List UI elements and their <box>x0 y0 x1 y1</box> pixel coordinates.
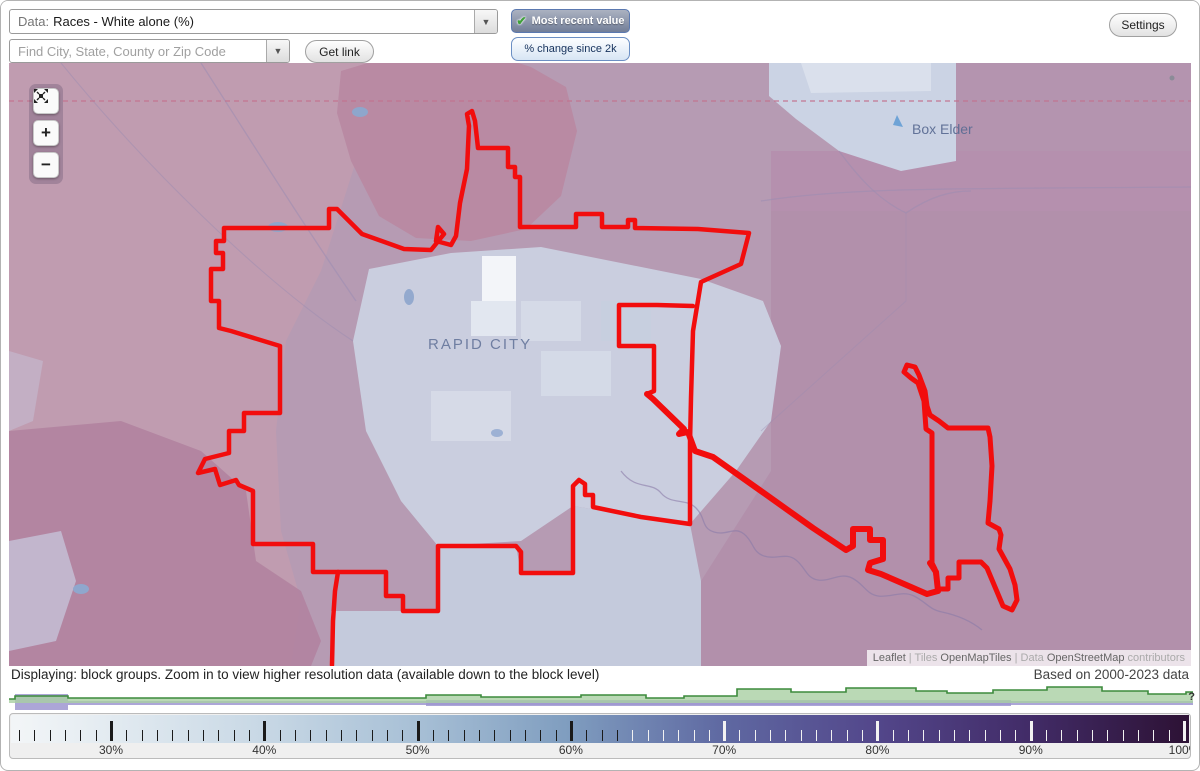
legend-minor-tick <box>464 730 465 741</box>
search-arrow-icon[interactable]: ▼ <box>266 40 289 62</box>
histogram-chart <box>9 685 1193 712</box>
search-placeholder: Find City, State, County or Zip Code <box>10 44 266 59</box>
fullscreen-icon <box>34 89 48 103</box>
legend-minor-tick <box>617 730 618 741</box>
legend-minor-tick <box>556 730 557 741</box>
legend-minor-tick <box>694 730 695 741</box>
legend-minor-tick <box>648 730 649 741</box>
legend-minor-tick <box>494 730 495 741</box>
legend-minor-tick <box>50 730 51 741</box>
legend-minor-tick <box>540 730 541 741</box>
legend-minor-tick <box>126 730 127 741</box>
legend-minor-tick <box>985 730 986 741</box>
data-select[interactable]: Data:Races - White alone (%) ▼ <box>9 9 498 34</box>
legend-minor-tick <box>249 730 250 741</box>
legend-minor-tick <box>1107 730 1108 741</box>
legend-minor-tick <box>96 730 97 741</box>
legend-label: 100% <box>1169 743 1191 757</box>
legend-minor-tick <box>954 730 955 741</box>
search-input[interactable]: Find City, State, County or Zip Code ▼ <box>9 39 290 63</box>
attribution-part: Data <box>1021 652 1047 664</box>
legend-minor-tick <box>1169 730 1170 741</box>
legend-minor-tick <box>280 730 281 741</box>
legend-label: 60% <box>559 743 583 757</box>
data-select-value: Data:Races - White alone (%) <box>10 14 474 29</box>
status-data-range-text: Based on 2000-2023 data <box>1034 667 1189 682</box>
get-link-button[interactable]: Get link <box>305 40 374 63</box>
zoom-out-button[interactable]: − <box>33 152 59 178</box>
legend-minor-tick <box>602 730 603 741</box>
legend-major-tick <box>110 721 113 741</box>
legend-minor-tick <box>310 730 311 741</box>
legend-minor-tick <box>893 730 894 741</box>
legend-minor-tick <box>234 730 235 741</box>
legend-minor-tick <box>1153 730 1154 741</box>
legend-minor-tick <box>1000 730 1001 741</box>
attribution-part: | <box>906 652 915 664</box>
legend-major-tick <box>417 721 420 741</box>
legend-minor-tick <box>663 730 664 741</box>
legend-minor-tick <box>218 730 219 741</box>
legend-major-tick <box>1030 721 1033 741</box>
legend-minor-tick <box>341 730 342 741</box>
legend-major-tick <box>263 721 266 741</box>
legend-minor-tick <box>709 730 710 741</box>
legend-minor-tick <box>372 730 373 741</box>
legend-minor-tick <box>908 730 909 741</box>
legend-minor-tick <box>326 730 327 741</box>
map-tiles <box>9 63 1191 666</box>
color-scale-labels: 30%40%50%60%70%80%90%100% <box>11 743 1189 759</box>
legend-minor-tick <box>1123 730 1124 741</box>
color-scale-legend: 30%40%50%60%70%80%90%100% <box>9 713 1191 759</box>
legend-label: 70% <box>712 743 736 757</box>
color-scale-gradient-bar <box>11 715 1189 743</box>
legend-minor-tick <box>295 730 296 741</box>
legend-minor-tick <box>862 730 863 741</box>
legend-minor-tick <box>1061 730 1062 741</box>
attribution-part: Leaflet <box>873 652 906 664</box>
legend-major-tick <box>876 721 879 741</box>
data-select-arrow-icon[interactable]: ▼ <box>474 10 497 33</box>
legend-minor-tick <box>847 730 848 741</box>
check-icon: ✔ <box>517 14 527 28</box>
legend-label: 40% <box>252 743 276 757</box>
legend-minor-tick <box>188 730 189 741</box>
legend-minor-tick <box>402 730 403 741</box>
legend-minor-tick <box>586 730 587 741</box>
legend-minor-tick <box>65 730 66 741</box>
data-select-prefix: Data: <box>18 14 49 29</box>
legend-minor-tick <box>816 730 817 741</box>
legend-minor-tick <box>448 730 449 741</box>
legend-minor-tick <box>157 730 158 741</box>
attribution-part: | <box>1012 652 1021 664</box>
legend-minor-tick <box>510 730 511 741</box>
legend-minor-tick <box>632 730 633 741</box>
legend-minor-tick <box>433 730 434 741</box>
map-controls: + − <box>29 84 63 184</box>
status-displaying-text: Displaying: block groups. Zoom in to vie… <box>11 667 599 682</box>
legend-minor-tick <box>479 730 480 741</box>
legend-minor-tick <box>203 730 204 741</box>
legend-minor-tick <box>34 730 35 741</box>
pct-change-since-2k-button[interactable]: % change since 2k <box>511 37 630 61</box>
legend-label: 30% <box>99 743 123 757</box>
pct-change-label: % change since 2k <box>524 43 616 55</box>
map-attribution[interactable]: Leaflet | Tiles OpenMapTiles | Data Open… <box>867 650 1191 666</box>
legend-minor-tick <box>142 730 143 741</box>
legend-minor-tick <box>1077 730 1078 741</box>
most-recent-value-label: Most recent value <box>532 15 625 27</box>
legend-minor-tick <box>755 730 756 741</box>
legend-minor-tick <box>1046 730 1047 741</box>
status-bar: Displaying: block groups. Zoom in to vie… <box>1 666 1199 685</box>
legend-minor-tick <box>80 730 81 741</box>
legend-minor-tick <box>172 730 173 741</box>
settings-button[interactable]: Settings <box>1109 13 1177 37</box>
help-button[interactable]: ? <box>1188 691 1195 703</box>
legend-major-tick <box>723 721 726 741</box>
legend-minor-tick <box>969 730 970 741</box>
data-select-current: Races - White alone (%) <box>53 14 194 29</box>
legend-major-tick <box>1183 721 1186 741</box>
toolbar: Data:Races - White alone (%) ▼ Find City… <box>1 1 1199 63</box>
legend-minor-tick <box>770 730 771 741</box>
most-recent-value-button[interactable]: ✔ Most recent value <box>511 9 630 33</box>
legend-minor-tick <box>1138 730 1139 741</box>
fullscreen-button[interactable] <box>33 88 59 114</box>
attribution-part: OpenMapTiles <box>940 652 1011 664</box>
legend-minor-tick <box>356 730 357 741</box>
attribution-part: contributors <box>1124 652 1185 664</box>
legend-minor-tick <box>831 730 832 741</box>
attribution-part: Tiles <box>915 652 941 664</box>
legend-minor-tick <box>387 730 388 741</box>
legend-minor-tick <box>939 730 940 741</box>
legend-label: 80% <box>865 743 889 757</box>
legend-label: 90% <box>1019 743 1043 757</box>
legend-minor-tick <box>525 730 526 741</box>
map-canvas[interactable]: RAPID CITY Box Elder + − Leaflet | Tiles… <box>9 63 1191 666</box>
distribution-histogram: ? <box>9 685 1193 712</box>
legend-label: 50% <box>406 743 430 757</box>
legend-minor-tick <box>739 730 740 741</box>
legend-minor-tick <box>1015 730 1016 741</box>
zoom-in-button[interactable]: + <box>33 120 59 146</box>
legend-minor-tick <box>801 730 802 741</box>
legend-minor-tick <box>785 730 786 741</box>
legend-minor-tick <box>1092 730 1093 741</box>
attribution-part: OpenStreetMap <box>1047 652 1125 664</box>
legend-minor-tick <box>19 730 20 741</box>
legend-minor-tick <box>923 730 924 741</box>
legend-major-tick <box>570 721 573 741</box>
app-window: Data:Races - White alone (%) ▼ Find City… <box>0 0 1200 771</box>
legend-minor-tick <box>678 730 679 741</box>
